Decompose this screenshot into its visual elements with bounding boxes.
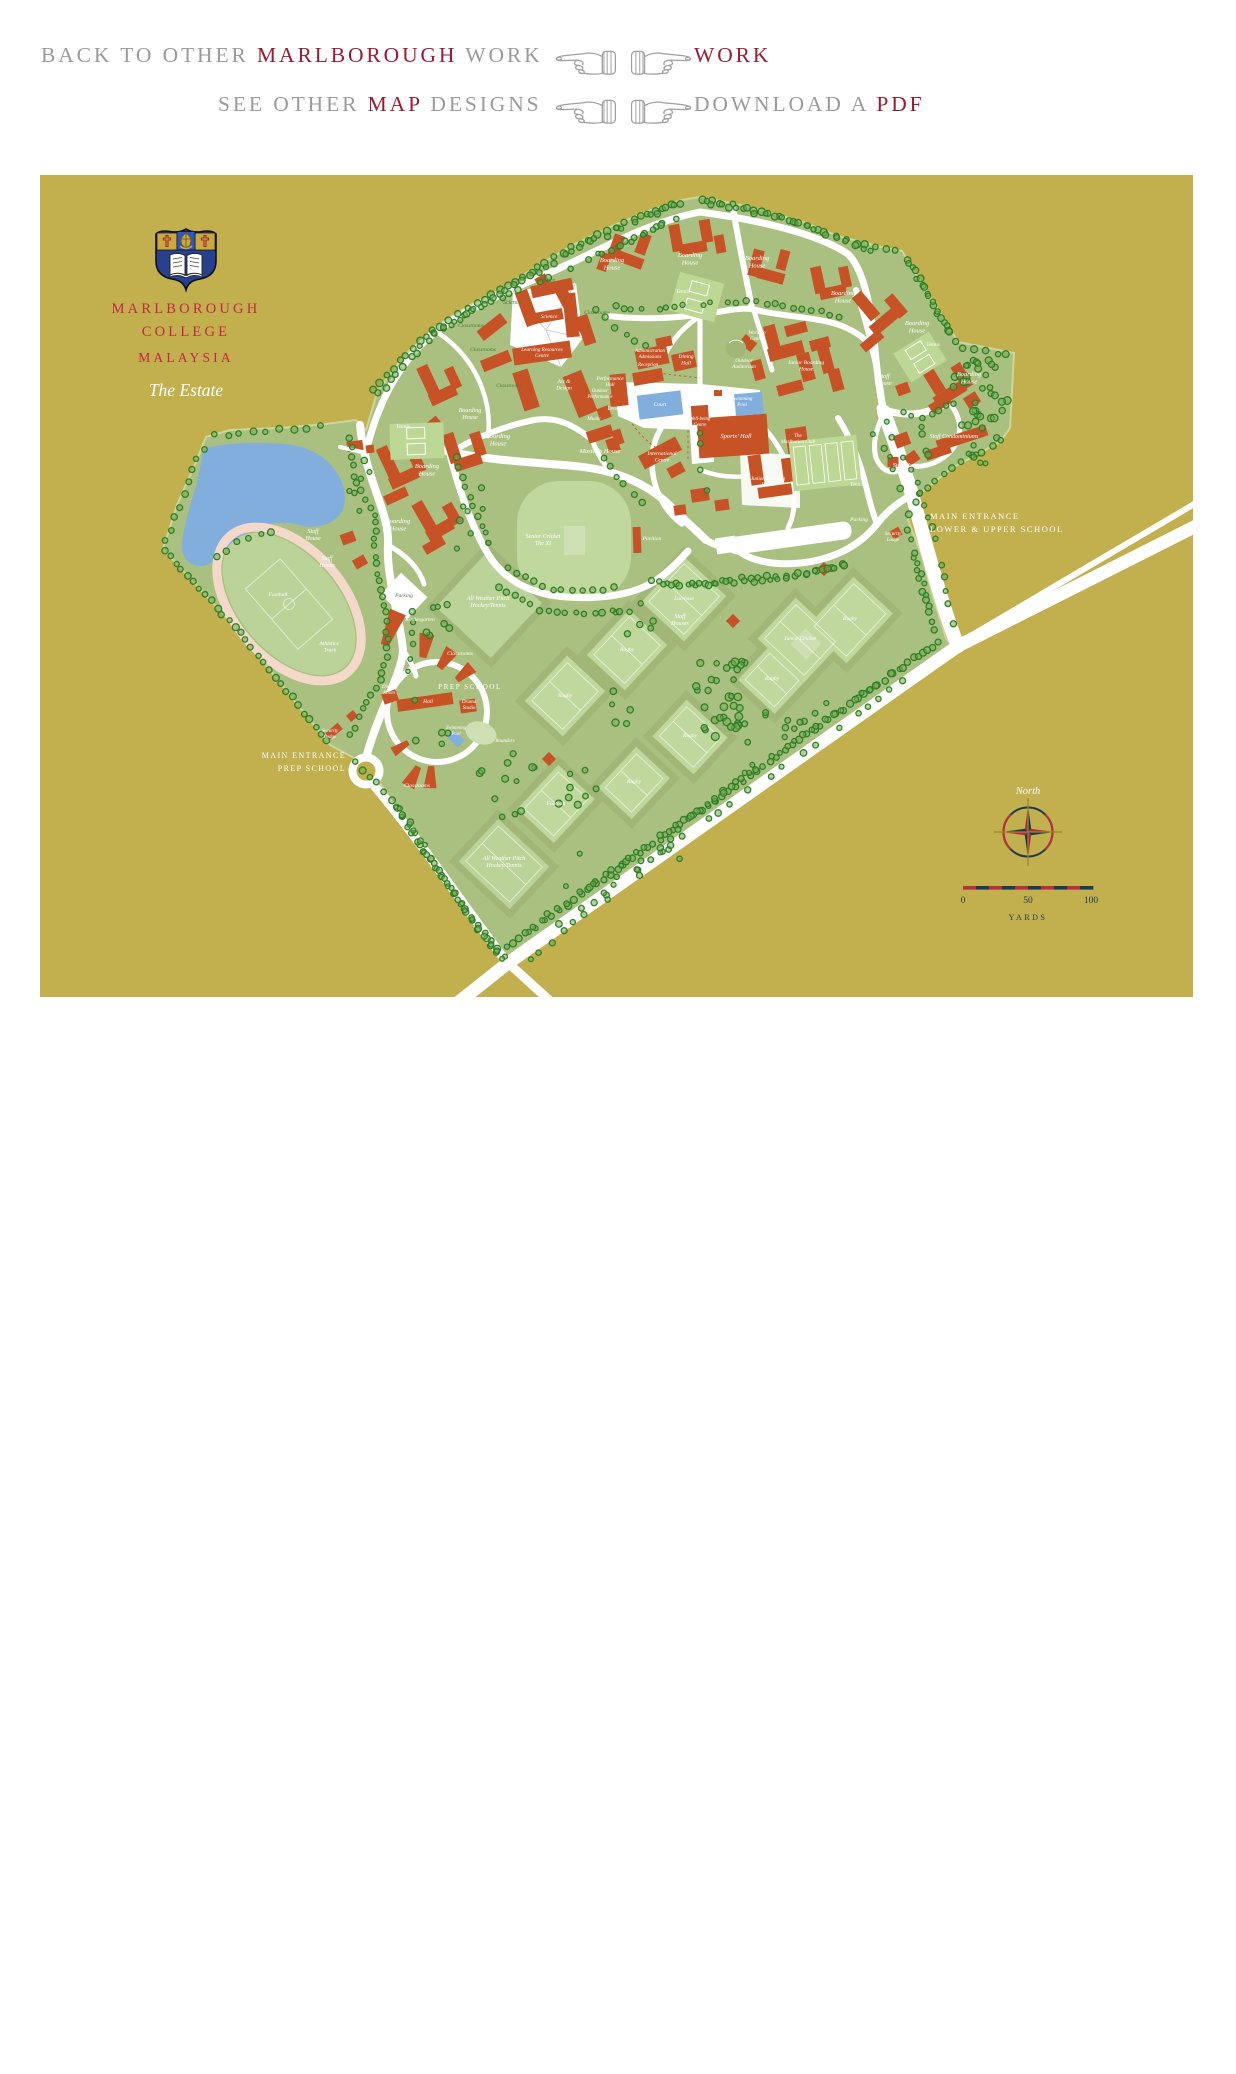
svg-text:The Estate: The Estate — [149, 380, 224, 400]
svg-text:Lodge: Lodge — [886, 538, 900, 543]
svg-text:Hall: Hall — [422, 699, 433, 705]
svg-text:Staff: Staff — [674, 613, 686, 620]
svg-text:Hall: Hall — [604, 382, 615, 388]
svg-text:Lodge: Lodge — [323, 735, 337, 740]
svg-text:Kindergarten: Kindergarten — [404, 617, 435, 623]
svg-text:North: North — [1015, 786, 1041, 797]
svg-text:Rounders: Rounders — [494, 739, 514, 744]
svg-text:The: The — [794, 434, 802, 439]
svg-text:Pool: Pool — [736, 403, 747, 408]
svg-text:Performance: Performance — [586, 395, 613, 400]
svg-text:Marlburian Club: Marlburian Club — [780, 440, 816, 445]
svg-text:Hockey/Tennis: Hockey/Tennis — [485, 863, 522, 869]
svg-text:Rugby: Rugby — [764, 676, 780, 682]
svg-text:House: House — [960, 379, 978, 386]
svg-text:Classrooms: Classrooms — [404, 783, 430, 789]
svg-text:Lacrosse: Lacrosse — [673, 596, 694, 602]
svg-text:LOWER & UPPER SCHOOL: LOWER & UPPER SCHOOL — [930, 524, 1064, 534]
svg-text:The XI: The XI — [535, 541, 552, 547]
svg-text:All Weather Pitch: All Weather Pitch — [482, 856, 525, 862]
svg-text:MAIN ENTRANCE: MAIN ENTRANCE — [262, 751, 346, 760]
svg-text:Outdoor: Outdoor — [592, 389, 608, 394]
svg-text:Football: Football — [268, 592, 288, 598]
svg-text:Tennis: Tennis — [396, 424, 410, 430]
svg-text:Room: Room — [382, 691, 395, 696]
svg-text:Swimming: Swimming — [446, 726, 467, 731]
svg-text:Staff: Staff — [321, 555, 333, 562]
svg-text:All Weather Pitch: All Weather Pitch — [466, 596, 509, 602]
svg-text:Boarding: Boarding — [957, 371, 982, 378]
svg-text:Parking: Parking — [394, 593, 413, 599]
svg-text:PREP SCHOOL: PREP SCHOOL — [438, 683, 502, 691]
svg-text:Boarding: Boarding — [678, 252, 703, 259]
svg-text:Classrooms: Classrooms — [470, 347, 496, 353]
svg-text:MALAYSIA: MALAYSIA — [138, 350, 234, 365]
svg-text:Athletics’: Athletics’ — [318, 641, 340, 647]
svg-text:International: International — [646, 451, 676, 457]
svg-text:Boarding: Boarding — [745, 255, 770, 262]
svg-text:Classrooms: Classrooms — [447, 651, 473, 657]
svg-text:Admissions: Admissions — [638, 355, 662, 360]
svg-text:COLLEGE: COLLEGE — [142, 324, 230, 340]
svg-text:House: House — [304, 536, 321, 542]
svg-text:House: House — [318, 563, 335, 569]
svg-text:Rugby: Rugby — [626, 779, 642, 785]
svg-text:Studio: Studio — [463, 706, 476, 711]
svg-text:Rugby: Rugby — [842, 616, 858, 622]
svg-text:Centre: Centre — [535, 353, 550, 359]
svg-text:Rugby: Rugby — [619, 647, 635, 653]
svg-text:Swimming: Swimming — [732, 397, 753, 402]
svg-text:MARLBOROUGH: MARLBOROUGH — [112, 301, 261, 317]
svg-text:Classrooms: Classrooms — [584, 310, 610, 316]
svg-text:Reception: Reception — [637, 363, 658, 368]
svg-text:PREP SCHOOL: PREP SCHOOL — [278, 764, 346, 773]
svg-text:House: House — [760, 482, 775, 488]
svg-text:Staff: Staff — [307, 528, 319, 535]
svg-text:Drama: Drama — [461, 700, 477, 705]
svg-text:Staff Houses: Staff Houses — [893, 462, 924, 469]
svg-text:Boarding: Boarding — [459, 408, 481, 414]
svg-text:Boarding: Boarding — [486, 433, 511, 440]
svg-text:Administration: Administration — [634, 349, 666, 354]
svg-text:Pavilion: Pavilion — [642, 536, 662, 542]
svg-text:Art &: Art & — [557, 379, 571, 385]
svg-text:Master’s House: Master’s House — [579, 448, 621, 455]
svg-text:Design: Design — [555, 386, 572, 392]
svg-text:Hockey/Tennis: Hockey/Tennis — [469, 603, 506, 609]
svg-text:Outdoor: Outdoor — [735, 358, 754, 364]
svg-text:House: House — [681, 260, 699, 267]
svg-text:Senior Cricket: Senior Cricket — [526, 534, 561, 540]
svg-text:Café: Café — [713, 387, 723, 392]
svg-text:Centre: Centre — [655, 458, 670, 464]
svg-text:House: House — [908, 328, 926, 335]
svg-text:Tennis: Tennis — [676, 289, 690, 295]
svg-text:Junior Cricket: Junior Cricket — [784, 636, 816, 642]
svg-text:House: House — [461, 415, 478, 421]
svg-text:Boarding: Boarding — [831, 290, 856, 297]
svg-text:Centre: Centre — [694, 423, 708, 428]
svg-text:Dining: Dining — [677, 354, 694, 360]
svg-text:Junior Boarding: Junior Boarding — [751, 476, 786, 482]
svg-text:Science: Science — [537, 278, 556, 284]
svg-text:Boarding: Boarding — [386, 518, 411, 525]
svg-text:100: 100 — [1084, 896, 1099, 906]
svg-text:House: House — [834, 298, 852, 305]
svg-text:Boarding: Boarding — [415, 463, 440, 470]
svg-text:Rugby: Rugby — [682, 733, 698, 739]
svg-text:Auditorium: Auditorium — [731, 364, 756, 370]
svg-text:Hall: Hall — [680, 361, 691, 367]
svg-text:Worship: Worship — [748, 330, 766, 336]
svg-text:House: House — [875, 381, 892, 387]
svg-text:Staff Condominiums: Staff Condominiums — [930, 433, 980, 440]
svg-text:Boarding: Boarding — [905, 320, 930, 327]
svg-text:Football: Football — [546, 801, 566, 807]
svg-text:Classrooms: Classrooms — [458, 323, 484, 329]
svg-text:House: House — [798, 367, 814, 373]
svg-text:Science: Science — [541, 314, 558, 320]
svg-text:50: 50 — [1023, 896, 1033, 906]
svg-text:House: House — [418, 471, 436, 478]
svg-text:House: House — [389, 526, 407, 533]
svg-text:Science: Science — [503, 300, 522, 306]
svg-text:Parking: Parking — [849, 517, 868, 523]
svg-text:Sports’ Hall: Sports’ Hall — [720, 433, 751, 440]
svg-text:Learning Resources: Learning Resources — [520, 347, 562, 353]
svg-text:Music: Music — [586, 416, 601, 422]
svg-text:Well-being: Well-being — [690, 417, 711, 422]
svg-text:Dining: Dining — [381, 685, 396, 690]
svg-text:Court: Court — [654, 402, 667, 408]
svg-text:Boarding: Boarding — [600, 257, 625, 264]
svg-text:Tennis: Tennis — [850, 482, 864, 488]
svg-text:Rugby: Rugby — [557, 693, 573, 699]
svg-text:YARDS: YARDS — [1009, 913, 1048, 922]
svg-text:Junior Boarding: Junior Boarding — [788, 360, 825, 366]
svg-text:Centre: Centre — [750, 336, 765, 342]
svg-text:MAIN ENTRANCE: MAIN ENTRANCE — [930, 511, 1020, 521]
svg-text:House: House — [748, 263, 766, 270]
svg-text:Security: Security — [885, 532, 902, 537]
svg-text:Security: Security — [322, 729, 339, 734]
svg-text:Tennis: Tennis — [926, 342, 940, 348]
svg-text:Staff: Staff — [878, 373, 890, 380]
svg-text:Classrooms: Classrooms — [496, 383, 522, 389]
svg-text:House: House — [603, 265, 621, 272]
svg-text:Performance: Performance — [595, 375, 624, 382]
svg-text:Track: Track — [324, 648, 337, 654]
svg-text:0: 0 — [961, 896, 966, 906]
svg-text:Drama: Drama — [607, 406, 623, 412]
svg-text:Pool: Pool — [450, 732, 461, 737]
svg-text:Houses: Houses — [670, 621, 689, 627]
svg-text:House: House — [489, 441, 507, 448]
